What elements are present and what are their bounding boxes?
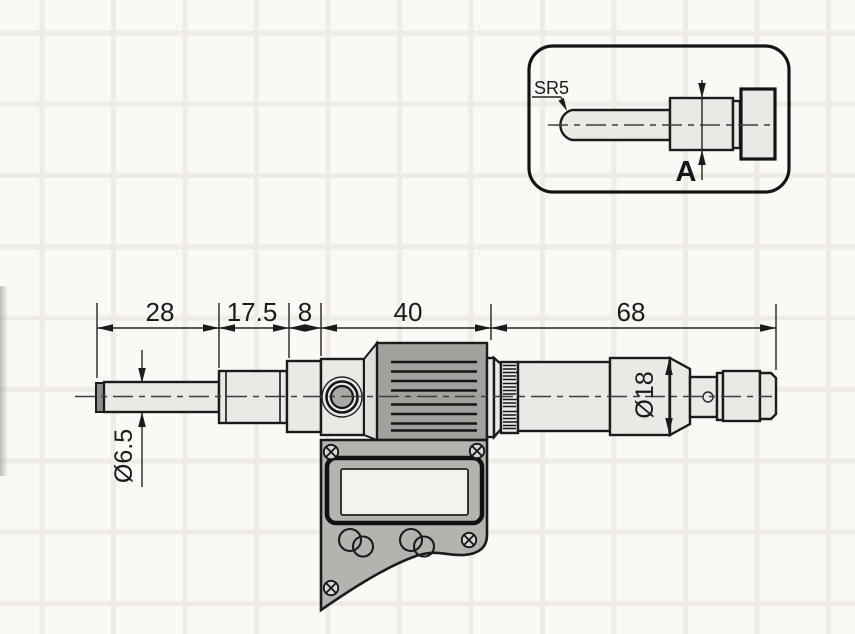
edge-shadow	[0, 286, 8, 476]
arrowhead	[203, 324, 219, 332]
dim-label-40: 40	[394, 297, 423, 327]
screw-mid-right	[462, 533, 476, 547]
dim-label-28: 28	[146, 297, 175, 327]
dim-label-17-5: 17.5	[227, 297, 278, 327]
inset-mount-block	[741, 89, 775, 159]
lcd-screen	[341, 469, 468, 515]
arrowhead	[491, 324, 507, 332]
screw-top-left	[324, 445, 338, 459]
main-view	[75, 343, 776, 610]
screw-bottom-left	[324, 581, 338, 595]
technical-drawing: SR5 A	[0, 0, 855, 634]
screw-top-right	[470, 444, 484, 458]
screenshot-canvas: SR5 A	[0, 0, 855, 634]
a-arrow-down	[698, 83, 706, 98]
arrowhead	[97, 324, 113, 332]
a-label: A	[676, 156, 697, 188]
dim-label-68: 68	[617, 297, 646, 327]
dim-label-dia18: Ø18	[631, 371, 659, 418]
arrowhead	[760, 324, 776, 332]
dim-label-dia6-5: Ø6.5	[110, 429, 138, 483]
dim-label-8: 8	[298, 297, 312, 327]
arrowhead	[475, 324, 491, 332]
sr5-label: SR5	[534, 78, 569, 98]
a-arrow-up	[698, 150, 706, 165]
body-bevel	[364, 343, 377, 440]
inset-panel: SR5 A	[529, 46, 789, 192]
